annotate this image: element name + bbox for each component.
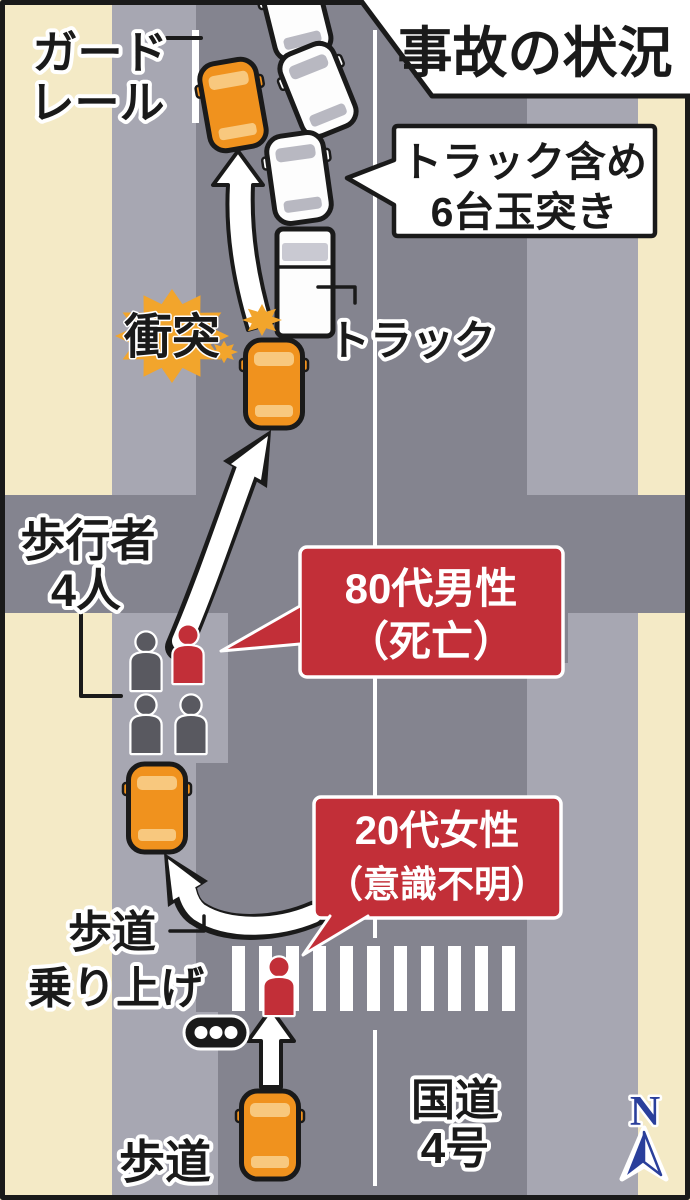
orange-car-on-sidewalk xyxy=(123,764,191,852)
orange-car-collision xyxy=(240,340,308,428)
collision-label: 衝突 xyxy=(123,311,220,364)
pileup-balloon-line1: トラック含め xyxy=(401,139,647,185)
pedestrian-gray xyxy=(132,633,161,691)
accident-diagram-page: トラック含め 6台玉突き 80代男性 （死亡） 20代女性 （意識不明） xyxy=(0,0,690,1200)
callout-female-line1: 20代女性 xyxy=(355,809,520,853)
traffic-light-icon xyxy=(184,1016,248,1049)
sidewalk-label: 歩道 xyxy=(119,1136,211,1188)
compass-north-label: N xyxy=(630,1089,660,1135)
pedestrians-label-line1: 歩行者 xyxy=(20,515,155,566)
truck-label: トラック xyxy=(328,317,496,364)
crosswalk-stripe xyxy=(502,946,515,1011)
page-title: 事故の状況 xyxy=(397,22,672,84)
crosswalk-stripe xyxy=(232,946,245,1011)
crosswalk-stripe xyxy=(367,946,380,1011)
traffic-light-lamp xyxy=(195,1026,208,1039)
route-label-line2: 4号 xyxy=(421,1124,489,1173)
sidewalk-mount-label-line1: 歩道 xyxy=(68,908,156,957)
truck-windshield xyxy=(282,243,328,261)
crosswalk-stripe xyxy=(421,946,434,1011)
guardrail-label-line2: レール xyxy=(29,77,164,128)
pedestrians-label-line2: 4人 xyxy=(51,565,121,616)
callout-male-line1: 80代男性 xyxy=(345,565,518,612)
crosswalk-stripe xyxy=(475,946,488,1011)
collision-spark xyxy=(242,304,282,336)
crosswalk-stripe xyxy=(340,946,353,1011)
pedestrian-gray xyxy=(177,696,206,754)
guardrail-label-line1: ガード xyxy=(32,27,167,78)
pileup-balloon-line2: 6台玉突き xyxy=(431,189,618,235)
pedestrian-victim-male xyxy=(174,626,203,684)
crosswalk-stripe xyxy=(313,946,326,1011)
traffic-light-lamp xyxy=(225,1026,238,1039)
truck xyxy=(277,229,333,336)
pedestrian-victim-female xyxy=(265,958,294,1016)
center-line-lower xyxy=(373,1030,377,1186)
callout-female-line2: （意識不明） xyxy=(326,864,548,905)
sidewalk-mount-label-line2: 乗り上げ xyxy=(28,964,204,1013)
route-label-line1: 国道 xyxy=(411,1076,499,1125)
orange-car-bottom xyxy=(236,1091,304,1179)
crosswalk-stripe xyxy=(394,946,407,1011)
callout-male-line2: （死亡） xyxy=(347,618,515,665)
crosswalk-stripe xyxy=(448,946,461,1011)
pileup-balloon: トラック含め 6台玉突き xyxy=(347,126,655,236)
pedestrian-gray xyxy=(132,696,161,754)
title-box: 事故の状況 xyxy=(356,0,690,96)
traffic-light-lamp xyxy=(210,1026,223,1039)
accident-diagram: トラック含め 6台玉突き 80代男性 （死亡） 20代女性 （意識不明） xyxy=(0,0,690,1200)
